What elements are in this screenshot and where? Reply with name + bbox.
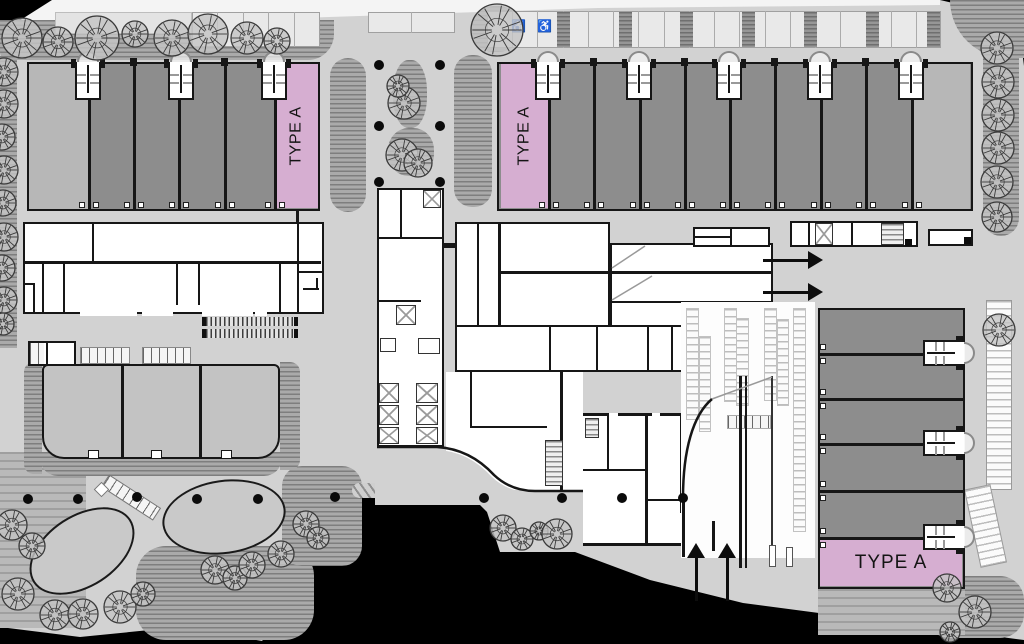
- bollard-icon: [678, 493, 688, 503]
- wall: [593, 64, 596, 209]
- door-notch: [675, 202, 681, 208]
- door-notch: [229, 202, 235, 208]
- parking-ticks: [30, 343, 44, 364]
- wall: [316, 278, 318, 290]
- porch-step: [809, 82, 818, 84]
- wall: [23, 283, 35, 285]
- door-notch: [151, 450, 162, 459]
- door-notch: [169, 202, 175, 208]
- door-notch: [820, 389, 826, 395]
- wall: [645, 413, 648, 545]
- wall: [622, 59, 627, 68]
- porch-step: [935, 540, 937, 549]
- hedge-stall: [619, 12, 632, 47]
- tree-icon: [0, 16, 44, 60]
- wall: [741, 59, 746, 68]
- tree-icon: [980, 97, 1016, 133]
- porch-step: [943, 540, 945, 549]
- elevator-icon: [379, 383, 399, 403]
- wall: [379, 237, 442, 239]
- wall: [400, 190, 402, 237]
- door-notch: [630, 202, 636, 208]
- wall: [560, 59, 565, 68]
- wall: [549, 327, 551, 372]
- wall: [956, 455, 965, 460]
- garage-block: [42, 364, 280, 459]
- door-notch: [279, 202, 285, 208]
- wall: [923, 59, 928, 68]
- elevator-icon: [379, 405, 399, 425]
- wall: [164, 59, 169, 68]
- door-notch: [820, 542, 826, 548]
- bollard-icon: [330, 492, 340, 502]
- planting-strip: [330, 58, 366, 212]
- tree-icon: [0, 311, 16, 337]
- stair-icon: [545, 440, 563, 486]
- bollard-icon: [617, 493, 627, 503]
- porch-step: [935, 526, 937, 535]
- wall: [865, 64, 868, 209]
- elevator-icon: [416, 383, 438, 403]
- parking-divider: [664, 11, 665, 48]
- wall: [819, 65, 821, 93]
- entry-arrow-icon: [687, 543, 705, 601]
- porch-step: [170, 82, 179, 84]
- wall: [671, 327, 673, 372]
- wall: [547, 65, 549, 93]
- door-notch: [779, 202, 785, 208]
- wall: [820, 490, 963, 493]
- wall: [470, 426, 547, 428]
- wall: [92, 224, 94, 263]
- door-notch: [598, 202, 604, 208]
- hedge-stall: [680, 12, 693, 47]
- porch-step: [537, 82, 546, 84]
- column-marker: [905, 239, 912, 246]
- tree-icon: [229, 20, 265, 56]
- door-notch: [584, 202, 590, 208]
- tree-icon: [66, 597, 100, 631]
- tree-icon: [980, 64, 1016, 100]
- wall: [651, 59, 656, 68]
- wall: [198, 263, 200, 305]
- wall: [501, 271, 610, 274]
- porch-step: [943, 526, 945, 535]
- wall: [728, 65, 730, 93]
- wall: [693, 236, 731, 238]
- tree-icon: [73, 14, 121, 62]
- wall: [279, 263, 281, 313]
- arrow-shaft: [763, 259, 808, 262]
- tree-icon: [469, 2, 525, 58]
- door-notch: [79, 202, 85, 208]
- door-notch: [765, 202, 771, 208]
- porch-step: [550, 82, 559, 84]
- wall: [25, 261, 321, 264]
- wall: [87, 65, 89, 93]
- bollard-icon: [374, 121, 384, 131]
- parking-ticks: [80, 347, 130, 364]
- door-notch: [820, 495, 826, 501]
- tree-icon: [0, 122, 17, 152]
- porch-step: [900, 82, 909, 84]
- porch-step: [170, 74, 179, 76]
- door-notch: [689, 202, 695, 208]
- door-notch: [734, 202, 740, 208]
- parking-divider: [790, 11, 791, 48]
- wall: [63, 263, 65, 313]
- porch-step: [77, 74, 86, 76]
- porch-step: [183, 74, 192, 76]
- bollard-icon: [132, 492, 142, 502]
- wall: [596, 327, 598, 372]
- wall: [46, 341, 48, 366]
- porch-step: [822, 74, 831, 76]
- exit-arrow-icon: [763, 283, 823, 301]
- wall: [681, 58, 688, 66]
- wall: [808, 221, 810, 247]
- tree-icon: [120, 19, 150, 49]
- arrow-shaft: [726, 557, 729, 601]
- stair-icon: [881, 223, 904, 245]
- wall: [221, 58, 228, 66]
- elevator-icon: [423, 190, 441, 208]
- bollard-icon: [557, 493, 567, 503]
- ramp-stripes: [736, 318, 749, 406]
- porch-step: [731, 82, 740, 84]
- parking-divider: [916, 11, 917, 48]
- hedge-stall: [557, 12, 570, 47]
- tree-icon: [0, 253, 17, 283]
- wall: [638, 65, 640, 93]
- bollard-icon: [23, 494, 33, 504]
- tree-icon: [0, 56, 20, 88]
- tree-icon: [262, 26, 292, 56]
- entry-arrow-icon: [718, 543, 736, 601]
- ramp-stripes: [699, 336, 711, 432]
- parking-divider: [411, 12, 412, 33]
- door-gap: [80, 311, 137, 316]
- door-notch: [811, 202, 817, 208]
- wall: [647, 327, 649, 372]
- hedge-stall: [927, 12, 940, 47]
- wall: [712, 59, 717, 68]
- porch-step: [913, 74, 922, 76]
- tree-icon: [0, 88, 20, 120]
- wall: [774, 64, 777, 209]
- door-gap: [142, 311, 173, 316]
- parking-divider: [294, 12, 295, 47]
- bollard-icon: [479, 493, 489, 503]
- door-notch: [183, 202, 189, 208]
- paver-edge: [280, 362, 300, 470]
- porch-step: [809, 74, 818, 76]
- porch-step: [263, 82, 272, 84]
- wall: [297, 271, 323, 273]
- porch-step: [943, 356, 945, 365]
- ramp-stripes: [686, 308, 699, 420]
- wall: [286, 59, 291, 68]
- parking-divider: [613, 11, 614, 48]
- parking-ticks: [142, 347, 191, 364]
- porch-step: [628, 82, 637, 84]
- elevator-icon: [815, 223, 833, 245]
- elevator-icon: [396, 305, 416, 325]
- wall: [894, 59, 899, 68]
- hedge-stall: [742, 12, 755, 47]
- parking-divider: [638, 11, 639, 48]
- wall: [684, 64, 687, 209]
- bollard-icon: [435, 60, 445, 70]
- parking-divider: [840, 11, 841, 48]
- ramp-stripes: [793, 308, 806, 532]
- arrow-shaft: [695, 557, 698, 601]
- door-notch: [88, 450, 99, 459]
- door-notch: [870, 202, 876, 208]
- tree-icon: [979, 30, 1015, 66]
- utility-room: [380, 338, 396, 352]
- porch-step: [90, 74, 99, 76]
- door-notch: [916, 202, 922, 208]
- wall: [820, 398, 963, 401]
- building-rooms: [455, 325, 698, 372]
- wall: [180, 65, 182, 93]
- wall: [133, 64, 136, 209]
- arrow-head: [808, 283, 823, 301]
- wall: [130, 58, 137, 66]
- porch-step: [550, 74, 559, 76]
- door-notch: [820, 358, 826, 364]
- wall: [956, 426, 965, 431]
- porch-step: [718, 82, 727, 84]
- door-notch: [215, 202, 221, 208]
- ramp-stripes: [777, 319, 789, 406]
- site-plan: ♿♿TYPE ATYPE ATYPE A: [0, 0, 1024, 644]
- wall: [956, 336, 965, 341]
- wall: [607, 415, 609, 471]
- door-notch: [820, 403, 826, 409]
- door-notch: [825, 202, 831, 208]
- tree-icon: [41, 25, 75, 59]
- tree-icon: [938, 620, 962, 644]
- curb: [682, 500, 685, 557]
- bollard-slot: [786, 547, 793, 567]
- door-notch: [553, 202, 559, 208]
- door-notch: [221, 450, 232, 459]
- accessible-parking-icon: ♿: [537, 19, 552, 33]
- column-marker: [964, 237, 971, 244]
- wall: [956, 365, 965, 370]
- wall: [832, 59, 837, 68]
- porch-step: [822, 82, 831, 84]
- ramp-wall: [771, 376, 773, 560]
- door-notch: [820, 344, 826, 350]
- porch-step: [935, 446, 937, 455]
- arrow-head: [808, 251, 823, 269]
- porch-step: [276, 82, 285, 84]
- door-notch: [644, 202, 650, 208]
- porch-step: [276, 74, 285, 76]
- porch-step: [943, 432, 945, 441]
- porch-step: [77, 82, 86, 84]
- wall: [121, 364, 124, 459]
- parking-divider: [588, 11, 589, 48]
- door-notch: [820, 448, 826, 454]
- hedge-stall: [804, 12, 817, 47]
- porch-step: [935, 356, 937, 365]
- tree-icon: [17, 531, 47, 561]
- porch-step: [90, 82, 99, 84]
- door-notch: [124, 202, 130, 208]
- tree-icon: [979, 164, 1015, 200]
- bollard-icon: [435, 177, 445, 187]
- door-notch: [138, 202, 144, 208]
- porch-step: [943, 342, 945, 351]
- door-notch: [820, 434, 826, 440]
- tree-icon: [385, 73, 411, 99]
- porch-step: [641, 82, 650, 84]
- wall: [583, 469, 647, 471]
- ramp-wall: [712, 521, 715, 551]
- hedge-stall: [866, 12, 879, 47]
- wall: [851, 221, 853, 247]
- wall: [862, 58, 869, 66]
- tree-icon: [540, 517, 574, 551]
- bollard-icon: [374, 177, 384, 187]
- wall: [956, 549, 965, 554]
- wall: [470, 372, 472, 428]
- door-notch: [265, 202, 271, 208]
- bike-rack: [202, 329, 298, 338]
- elevator-icon: [379, 427, 399, 444]
- wall: [297, 222, 299, 314]
- wall: [803, 59, 808, 68]
- porch-step: [628, 74, 637, 76]
- wall: [273, 65, 275, 93]
- arrow-shaft: [763, 291, 808, 294]
- bollard-icon: [73, 494, 83, 504]
- type-a-label: TYPE A: [288, 106, 306, 165]
- door-notch: [820, 481, 826, 487]
- tree-icon: [0, 221, 20, 253]
- porch-step: [641, 74, 650, 76]
- parking-divider: [765, 11, 766, 48]
- bollard-icon: [192, 494, 202, 504]
- wall: [379, 300, 421, 302]
- wall: [771, 58, 778, 66]
- door-notch: [720, 202, 726, 208]
- parking-divider: [714, 11, 715, 48]
- wall: [498, 222, 501, 327]
- planting-strip: [454, 55, 492, 207]
- porch-step: [183, 82, 192, 84]
- wall: [33, 283, 35, 313]
- utility-line: [296, 211, 299, 222]
- elevator-icon: [416, 427, 438, 444]
- ramp-wall: [739, 376, 742, 568]
- door-gap: [255, 311, 267, 316]
- porch-step: [943, 446, 945, 455]
- door-notch: [93, 202, 99, 208]
- wall: [927, 352, 955, 354]
- tree-icon: [129, 580, 157, 608]
- wall: [531, 59, 536, 68]
- tree-icon: [0, 154, 20, 186]
- wall: [199, 364, 202, 459]
- door-notch: [902, 202, 908, 208]
- type-a-label: TYPE A: [855, 552, 928, 574]
- tree-icon: [237, 550, 267, 580]
- porch-step: [263, 74, 272, 76]
- grate: [727, 415, 771, 429]
- porch-step: [731, 74, 740, 76]
- stair-icon: [585, 418, 599, 438]
- tree-icon: [980, 200, 1014, 234]
- ramp-wall: [745, 376, 747, 568]
- porch-step: [900, 74, 909, 76]
- arrow-head: [687, 543, 705, 558]
- wall: [224, 64, 227, 209]
- porch-step: [935, 432, 937, 441]
- wall: [42, 263, 44, 313]
- bollard-icon: [253, 494, 263, 504]
- door-gap: [202, 311, 253, 316]
- tree-icon: [981, 312, 1017, 348]
- porch-step: [718, 74, 727, 76]
- bollard-icon: [374, 60, 384, 70]
- tree-icon: [980, 130, 1016, 166]
- porch-step: [935, 342, 937, 351]
- wall: [477, 222, 479, 327]
- tree-icon: [266, 539, 296, 569]
- tree-icon: [957, 594, 993, 630]
- porch-step: [913, 82, 922, 84]
- wall: [193, 59, 198, 68]
- wall: [176, 263, 178, 305]
- tree-icon: [186, 12, 230, 56]
- door-notch: [820, 528, 826, 534]
- bollard-icon: [435, 121, 445, 131]
- parking-divider: [891, 11, 892, 48]
- bike-rack: [202, 317, 298, 326]
- porch-step: [537, 74, 546, 76]
- tree-icon: [0, 576, 36, 612]
- parking-divider: [739, 11, 740, 48]
- wall: [583, 543, 683, 546]
- wall: [590, 58, 597, 66]
- bollard-slot: [769, 545, 776, 567]
- wall: [583, 413, 609, 416]
- wall: [612, 271, 771, 274]
- type-a-label: TYPE A: [516, 106, 534, 165]
- tree-icon: [402, 147, 434, 179]
- door-notch: [539, 202, 545, 208]
- tree-icon: [0, 188, 18, 218]
- arrow-head: [718, 543, 736, 558]
- wall: [956, 520, 965, 525]
- wall: [257, 59, 262, 68]
- door-notch: [856, 202, 862, 208]
- elevator-icon: [416, 405, 438, 425]
- exit-arrow-icon: [763, 251, 823, 269]
- wall: [927, 442, 955, 444]
- wall: [910, 65, 912, 93]
- utility-room: [418, 338, 440, 354]
- tree-icon: [305, 525, 331, 551]
- wall: [927, 536, 955, 538]
